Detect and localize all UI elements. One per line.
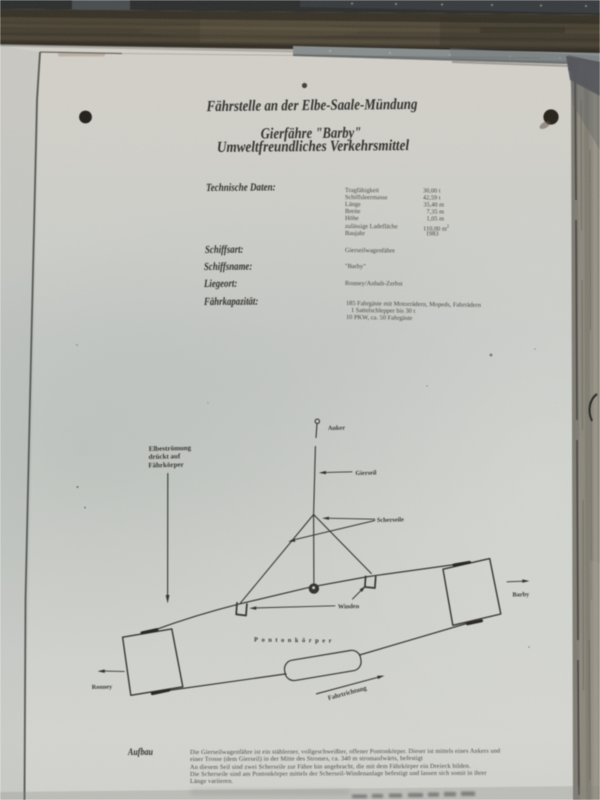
- svg-text:Fahrtrichtung: Fahrtrichtung: [327, 685, 368, 702]
- svg-text:Gierseil: Gierseil: [355, 469, 376, 477]
- svg-text:Anker: Anker: [328, 425, 346, 432]
- svg-text:Fährkörper: Fährkörper: [148, 461, 184, 470]
- svg-text:Pontonkörper: Pontonkörper: [254, 637, 335, 645]
- svg-text:Barby: Barby: [512, 591, 530, 598]
- svg-text:drückt auf: drückt auf: [148, 452, 181, 461]
- svg-text:Ronney: Ronney: [92, 683, 114, 691]
- svg-text:Winden: Winden: [338, 603, 360, 611]
- svg-text:Scherseile: Scherseile: [377, 516, 404, 524]
